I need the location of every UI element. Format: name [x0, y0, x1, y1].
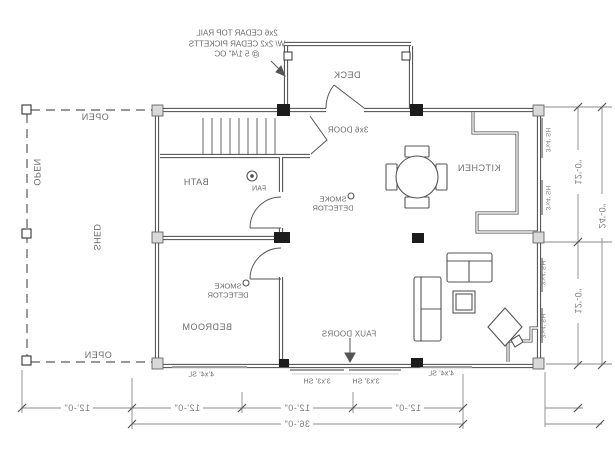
bedroom-room-label: BEDROOM — [182, 322, 232, 332]
bedroom-door-swing — [250, 248, 281, 279]
sofa-icon — [414, 277, 441, 341]
furniture — [243, 146, 523, 347]
smoke-detector-label: SMOKE DETECTOR — [207, 283, 248, 300]
dim-bottom-total: 36'-0" — [281, 419, 313, 429]
kitchen-room-label: KITCHEN — [457, 163, 500, 173]
dining-table-icon — [386, 146, 447, 208]
shed-room-label: SHED — [91, 215, 103, 259]
deck-room-label: DECK — [333, 70, 360, 80]
bath-door-swing — [250, 197, 281, 228]
stair-treads — [203, 118, 275, 154]
dim-bottom-1: 12'-0" — [61, 403, 93, 413]
smoke-detector-line2: DETECTOR — [207, 291, 248, 300]
window-tag-bottom-left: 4'x4' SL — [188, 372, 214, 379]
railing-note-line1: 2x6 CEDAR TOP RAIL — [189, 28, 285, 39]
open-label-bottom: OPEN — [84, 350, 112, 360]
smoke-detector-label: SMOKE DETECTOR — [312, 196, 353, 213]
fan-label: FAN — [252, 186, 266, 193]
fan-icon — [247, 171, 257, 181]
loveseat-icon — [447, 253, 492, 282]
railing-note-line3: @ 5 1/4" OC — [189, 49, 285, 60]
shed-outline — [27, 110, 152, 362]
open-label-left: OPEN — [31, 150, 43, 194]
dim-bottom-4: 12'-0" — [392, 403, 424, 413]
window-tag-faux-left: 3'x3' SH — [303, 379, 330, 386]
deck-door-swing — [326, 85, 364, 108]
deck-pickets — [284, 52, 410, 60]
dim-right-total: 24'-0" — [596, 194, 608, 238]
railing-note-line2: W/ 2x2 CEDAR PICKETTS — [189, 39, 285, 50]
dim-right-2: 12'-0" — [572, 279, 584, 323]
bath-room-label: BATH — [183, 177, 208, 187]
window-tag-side-2: 3'x4' SH — [541, 176, 553, 220]
deck-door-label: 3x6 DOOR — [328, 126, 369, 135]
accent-chair-icon — [488, 308, 523, 347]
window-tag-side-4: 3'x4' SH — [536, 304, 548, 348]
faux-doors-arrow — [345, 338, 355, 362]
railing-note: 2x6 CEDAR TOP RAIL W/ 2x2 CEDAR PICKETTS… — [189, 28, 285, 60]
open-label-top: OPEN — [81, 112, 109, 122]
dim-bottom-2: 12'-0" — [171, 403, 203, 413]
window-tag-faux-right: 3'x3' SH — [352, 379, 379, 386]
faux-doors-label: FAUX DOORS — [322, 330, 376, 339]
floor-plan-canvas: 2x6 CEDAR TOP RAIL W/ 2x2 CEDAR PICKETTS… — [0, 0, 615, 456]
dim-bottom-3: 12'-0" — [281, 403, 313, 413]
smoke-detector-line2: DETECTOR — [312, 204, 353, 213]
coffee-table-icon — [453, 291, 475, 313]
window-tag-side-1: 3'x4' SH — [541, 118, 553, 162]
window-tag-side-3: 3'x4' SH — [536, 251, 548, 295]
door-swings — [250, 85, 364, 279]
dim-right-1: 12'-0" — [572, 150, 584, 194]
window-tag-bottom-right: 4'x4' SL — [428, 371, 454, 378]
note-leader-arrow — [271, 61, 285, 76]
stair-landing-door — [310, 116, 327, 154]
